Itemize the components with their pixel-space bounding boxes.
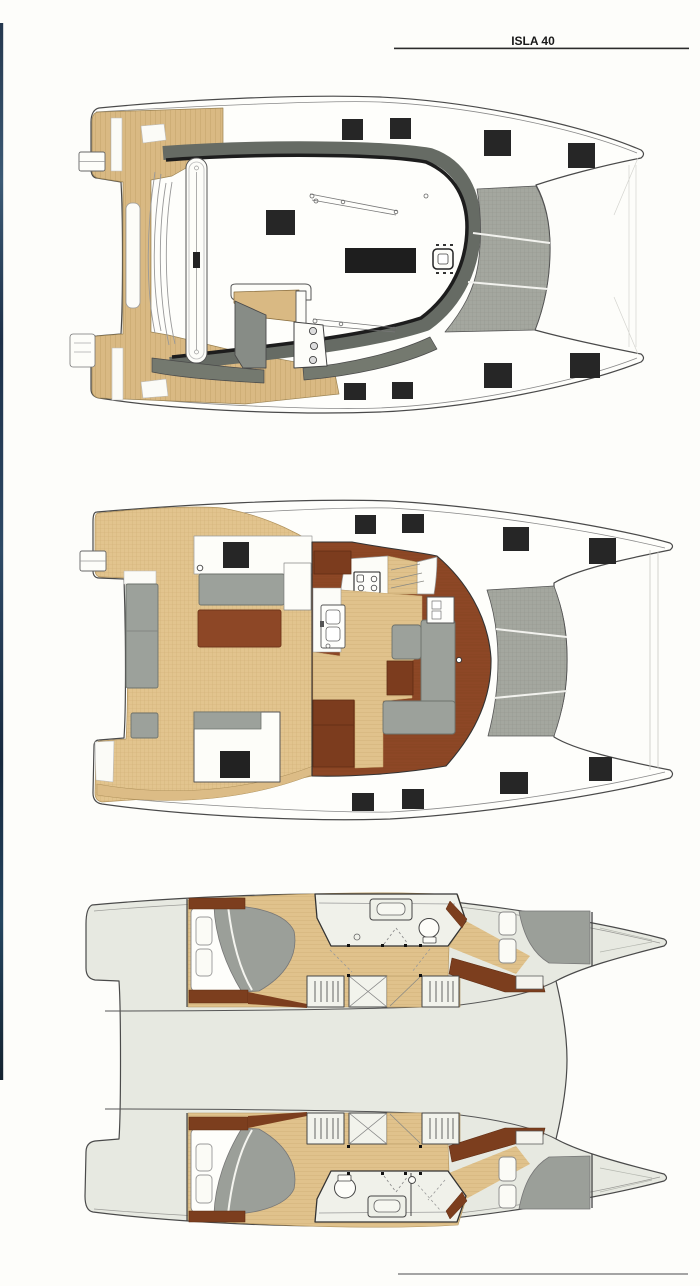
svg-text:ISLA 40: ISLA 40 [511,34,555,48]
